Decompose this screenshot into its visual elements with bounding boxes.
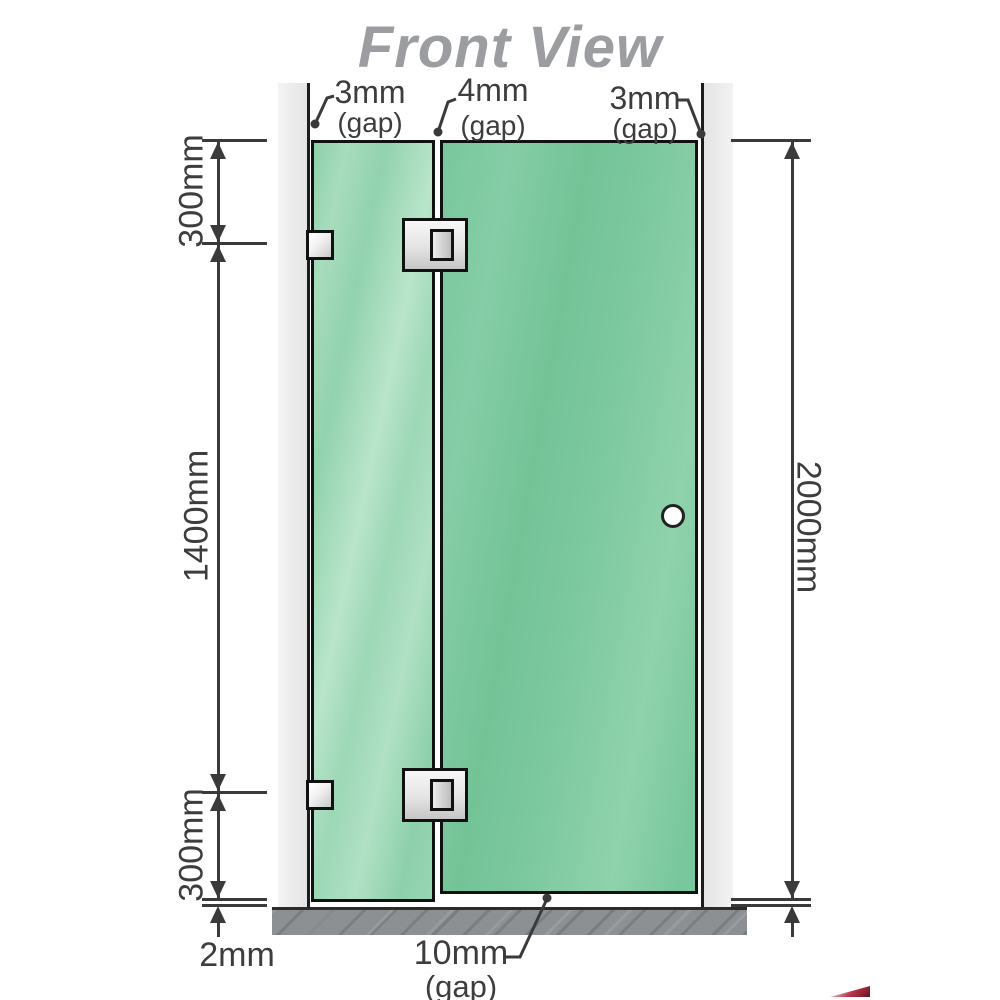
dim-label-2000mm: 2000mm xyxy=(789,461,828,593)
arrowhead xyxy=(210,142,226,159)
gap-value: 3mm xyxy=(600,82,690,115)
dim-gap-stem-right xyxy=(791,912,794,937)
arrowhead xyxy=(210,225,226,242)
leader-dot xyxy=(311,120,320,129)
dim-gap-stem-left xyxy=(217,912,220,937)
door-handle-knob xyxy=(661,504,685,528)
right-wall xyxy=(704,83,733,907)
dim-label-300mm-top: 300mm xyxy=(173,134,212,247)
dim-label-300mm-bottom: 300mm xyxy=(173,788,212,901)
arrowhead xyxy=(784,881,800,898)
gap-unit: (gap) xyxy=(448,112,538,141)
logo-fragment xyxy=(830,986,870,997)
arrowhead xyxy=(784,142,800,159)
leader-dot xyxy=(543,894,552,903)
door-glass-panel xyxy=(440,140,698,894)
gap-value: 4mm xyxy=(448,74,538,107)
arrowhead xyxy=(210,245,226,262)
callout-gap-top-left: 3mm (gap) xyxy=(325,76,415,137)
arrowhead xyxy=(210,794,226,811)
left-wall xyxy=(278,83,307,907)
arrowhead xyxy=(210,774,226,791)
wall-bracket-top xyxy=(306,230,334,260)
door-hinge-top-notch xyxy=(430,229,454,261)
dim-label-1400mm: 1400mm xyxy=(178,450,217,582)
dim-label-2mm: 2mm xyxy=(198,936,276,975)
diagram-title: Front View xyxy=(270,14,750,81)
front-view-diagram: Front View 300mm 1400mm 300mm 2mm 2000mm… xyxy=(0,0,1000,1000)
arrowhead xyxy=(210,881,226,898)
dim-tick-glass-bottom-right xyxy=(731,898,811,901)
floor-base xyxy=(272,907,747,935)
callout-gap-bottom-door: 10mm (gap) xyxy=(413,936,509,1000)
gap-unit: (gap) xyxy=(325,109,415,138)
door-hinge-bottom-notch xyxy=(430,779,454,811)
dim-tick-glass-bottom-left xyxy=(202,898,267,901)
leader-dot xyxy=(434,128,443,137)
callout-gap-top-mid: 4mm (gap) xyxy=(448,74,538,140)
gap-unit: (gap) xyxy=(413,971,509,1000)
callout-gap-top-right: 3mm (gap) xyxy=(600,82,690,143)
gap-unit: (gap) xyxy=(600,115,690,144)
wall-bracket-bottom xyxy=(306,780,334,810)
gap-value: 10mm xyxy=(413,936,509,971)
gap-value: 3mm xyxy=(325,76,415,109)
